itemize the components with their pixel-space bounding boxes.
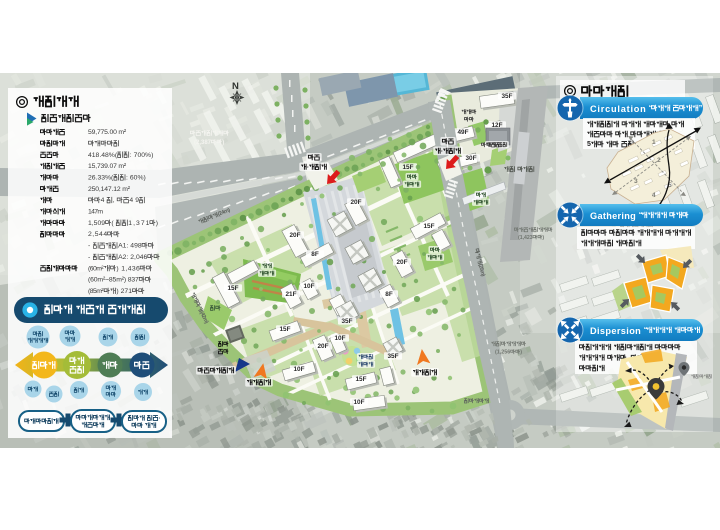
svg-text:10F: 10F [303,283,314,290]
svg-text:(60m²: (60m² [88,265,104,272]
svg-text:”: ” [699,105,703,112]
svg-text:4: 4 [652,192,656,199]
svg-text:59,775.00 m²: 59,775.00 m² [88,129,127,136]
svg-text:49F: 49F [457,129,468,136]
svg-text:) 271: ) 271 [116,288,132,295]
svg-text:15,739.07 m²: 15,739.07 m² [88,163,127,170]
svg-text:26.33%(: 26.33%( [88,175,114,182]
svg-text:49: 49 [129,197,139,204]
svg-text:20F: 20F [289,232,300,239]
svg-text:(60m²~85m²) 837: (60m²~85m²) 837 [88,277,139,284]
svg-text:Gathering: Gathering [590,211,636,221]
svg-text:N: N [232,81,239,92]
svg-text:35F: 35F [387,353,398,360]
svg-text:2: 2 [657,157,661,164]
svg-text:Circulation: Circulation [590,104,646,114]
svg-text:20F: 20F [350,199,361,206]
svg-text:: 700%): : 700%) [130,152,154,159]
svg-text:10F: 10F [293,366,304,373]
svg-text:): ) [156,220,158,227]
svg-text:-: - [88,243,90,250]
svg-text:1: 1 [652,139,656,146]
svg-text:4: 4 [101,197,105,204]
svg-text:147m: 147m [88,209,103,216]
svg-text:5: 5 [587,141,591,148]
svg-text:15F: 15F [402,164,413,171]
svg-text:21F: 21F [285,291,296,298]
svg-text:) 1,436: ) 1,436 [116,265,140,272]
svg-text:Dispersion: Dispersion [590,326,641,336]
svg-text:15F: 15F [355,376,366,383]
svg-text:35F: 35F [341,318,352,325]
svg-text:(2,387: (2,387 [194,140,212,146]
svg-text:(1,256: (1,256 [495,349,510,355]
svg-text:(85m²: (85m² [88,288,104,295]
svg-text:A1: 498: A1: 498 [118,243,142,250]
svg-text:·: · [307,164,309,171]
svg-text:-: - [88,254,90,261]
svg-text:35F: 35F [501,93,512,100]
svg-text:(1,423: (1,423 [518,235,533,241]
svg-text:15F: 15F [227,285,238,292]
svg-text:8F: 8F [385,291,393,298]
svg-text:20F: 20F [396,259,407,266]
svg-text:3: 3 [634,178,638,185]
svg-text:1,509: 1,509 [88,220,105,227]
svg-text:30F: 30F [465,155,476,162]
svg-text:·: · [441,148,443,155]
svg-text:A2: 2,046: A2: 2,046 [118,254,147,261]
svg-text:8F: 8F [311,251,319,258]
svg-text:1,371: 1,371 [128,220,149,227]
svg-text:10F: 10F [334,335,345,342]
svg-text:2,544: 2,544 [88,231,107,238]
svg-text:,: , [113,197,115,204]
svg-text:): ) [222,140,224,146]
svg-text:: 60%): : 60%) [126,175,146,182]
svg-text:): ) [542,235,544,241]
svg-text:15F: 15F [423,223,434,230]
svg-text:15F: 15F [279,326,290,333]
svg-text:418.48%(: 418.48%( [88,152,118,159]
svg-text:10F: 10F [353,399,364,406]
svg-text:20F: 20F [317,343,328,350]
svg-text:250,147.12 m²: 250,147.12 m² [88,186,131,193]
svg-text:): ) [520,349,522,355]
svg-text:·: · [159,415,161,422]
